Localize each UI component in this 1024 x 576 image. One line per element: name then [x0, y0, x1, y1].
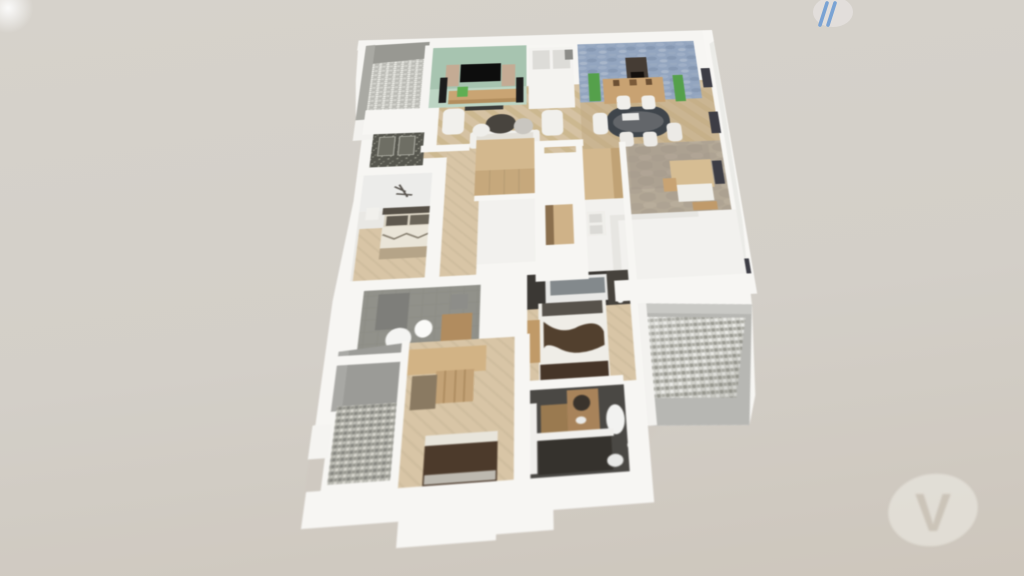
svg-text:V: V	[915, 483, 951, 543]
